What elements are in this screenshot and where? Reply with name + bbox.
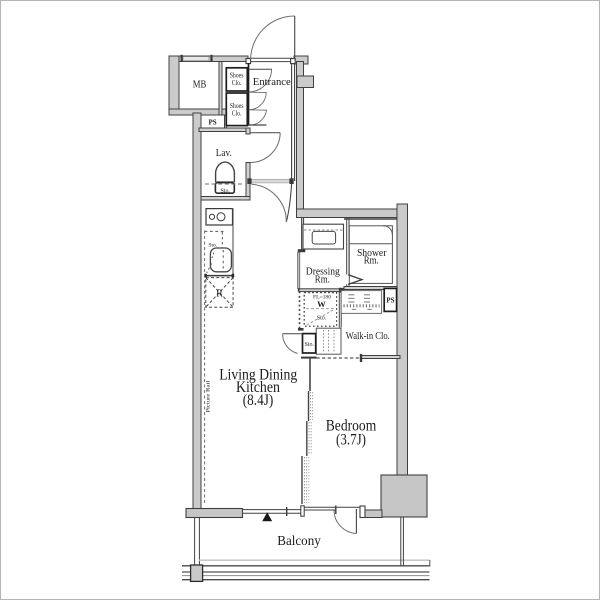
- svg-text:W: W: [317, 299, 326, 309]
- svg-text:Sto.: Sto.: [220, 189, 230, 195]
- svg-text:Sto.: Sto.: [208, 242, 217, 248]
- svg-text:Lav.: Lav.: [216, 148, 232, 159]
- svg-text:Walk-in Clo.: Walk-in Clo.: [346, 331, 390, 342]
- svg-text:(8.4J): (8.4J): [243, 392, 274, 409]
- svg-text:Clo.: Clo.: [232, 79, 242, 87]
- svg-text:Sto.: Sto.: [317, 315, 327, 321]
- svg-text:PS: PS: [386, 297, 394, 305]
- svg-text:Clo.: Clo.: [232, 109, 242, 117]
- svg-text:Balcony: Balcony: [277, 534, 321, 549]
- svg-text:(3.7J): (3.7J): [336, 431, 366, 448]
- svg-text:Picture Rail: Picture Rail: [206, 380, 212, 413]
- svg-text:PS: PS: [209, 118, 217, 126]
- svg-text:MB: MB: [193, 79, 207, 90]
- svg-text:Sto.: Sto.: [304, 342, 314, 348]
- svg-text:R: R: [216, 289, 223, 300]
- svg-text:Rm.: Rm.: [315, 274, 330, 285]
- svg-text:Entrance: Entrance: [253, 76, 291, 88]
- svg-text:Rm.: Rm.: [364, 255, 379, 266]
